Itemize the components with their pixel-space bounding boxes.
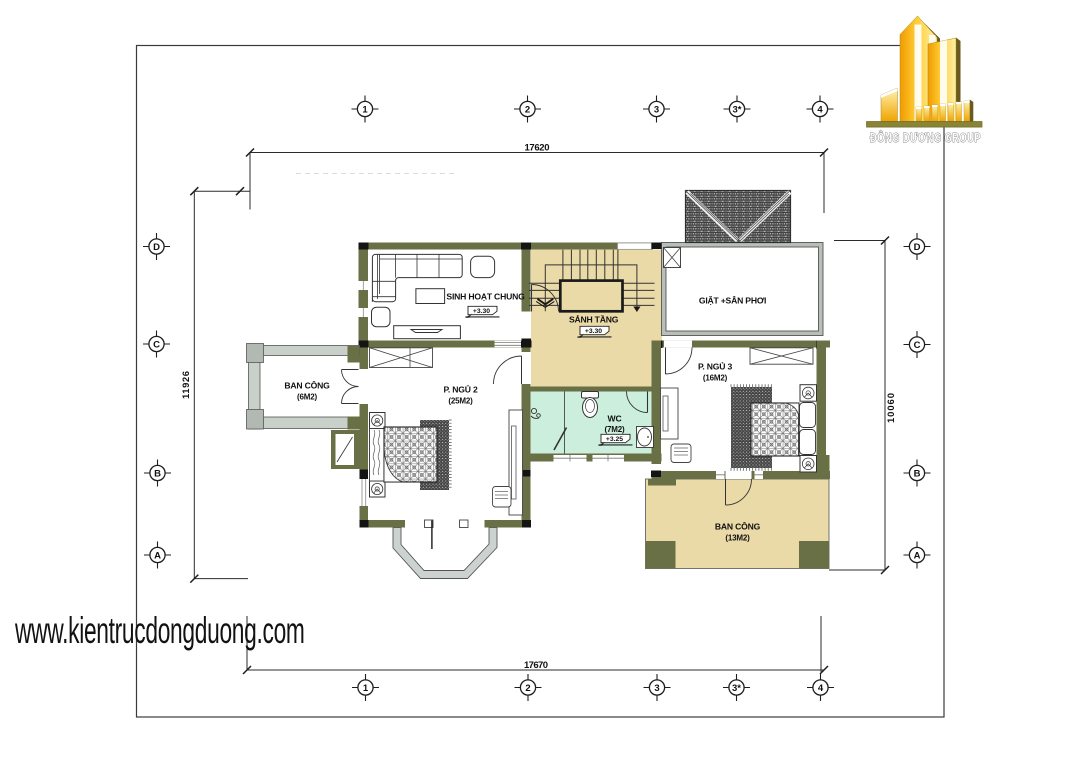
svg-text:D: D (153, 242, 160, 253)
svg-text:(13M2): (13M2) (725, 534, 750, 543)
svg-text:2: 2 (525, 683, 530, 694)
svg-text:SINH HOẠT CHUNG: SINH HOẠT CHUNG (446, 292, 525, 302)
svg-text:3: 3 (654, 683, 659, 694)
svg-text:3*: 3* (733, 104, 742, 115)
svg-text:17670: 17670 (524, 660, 548, 671)
svg-text:2: 2 (525, 104, 530, 115)
svg-text:+3.30: +3.30 (585, 328, 602, 335)
svg-text:(16M2): (16M2) (703, 374, 728, 383)
svg-text:C: C (153, 339, 160, 350)
svg-text:3*: 3* (732, 683, 741, 694)
svg-text:C: C (914, 340, 921, 351)
svg-text:(7M2): (7M2) (605, 425, 625, 434)
svg-text:+3.25: +3.25 (606, 436, 623, 443)
svg-text:BAN CÔNG: BAN CÔNG (284, 380, 330, 391)
svg-text:SẢNH TẦNG: SẢNH TẦNG (569, 314, 619, 325)
svg-text:1: 1 (362, 104, 368, 115)
svg-text:ĐÔNG DƯƠNG GROUP: ĐÔNG DƯƠNG GROUP (870, 131, 981, 146)
svg-text:11926: 11926 (181, 371, 192, 399)
svg-text:4: 4 (817, 104, 823, 115)
svg-text:A: A (914, 550, 921, 561)
svg-text:17620: 17620 (525, 143, 550, 154)
svg-text:(6M2): (6M2) (297, 393, 317, 402)
svg-text:B: B (154, 468, 161, 479)
svg-text:1: 1 (363, 683, 369, 694)
svg-text:A: A (154, 550, 161, 561)
svg-text:10060: 10060 (886, 393, 897, 423)
svg-text:B: B (914, 468, 921, 479)
svg-text:3: 3 (654, 104, 659, 115)
svg-text:P. NGỦ 2: P. NGỦ 2 (443, 384, 477, 395)
svg-text:BAN CÔNG: BAN CÔNG (715, 521, 761, 532)
svg-text:+3.30: +3.30 (473, 308, 490, 315)
svg-text:4: 4 (818, 683, 824, 694)
svg-text:(25M2): (25M2) (448, 397, 473, 406)
svg-text:P. NGỦ 3: P. NGỦ 3 (698, 361, 732, 372)
svg-text:WC: WC (608, 414, 622, 424)
svg-text:D: D (914, 242, 921, 253)
svg-text:GIẶT +SÂN PHƠI: GIẶT +SÂN PHƠI (699, 295, 766, 306)
